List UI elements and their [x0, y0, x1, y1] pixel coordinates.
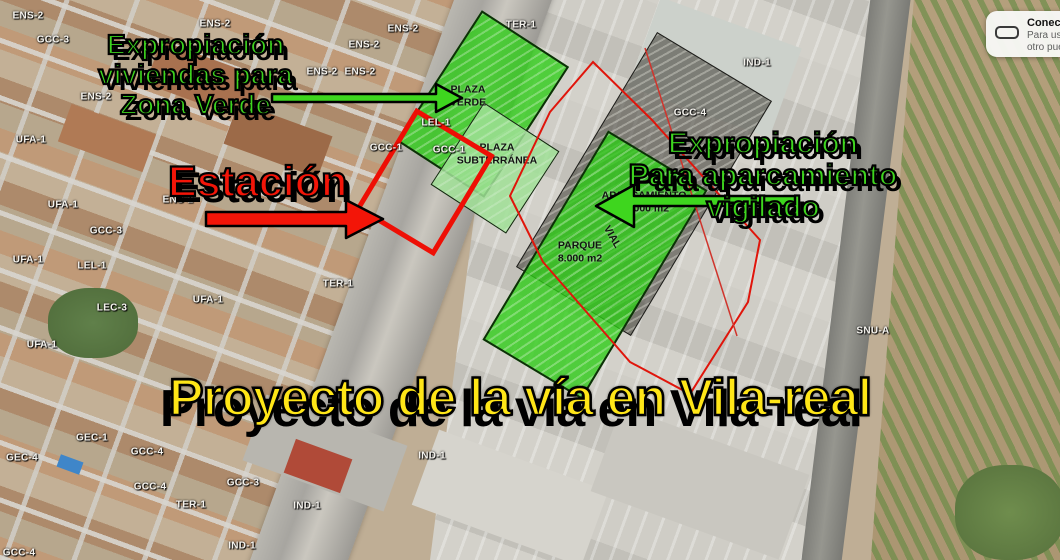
zone-code-label: LEL-1 — [421, 118, 450, 129]
zona-verde-annotation: Expropiación viviendas para Zona Verde — [58, 30, 333, 120]
zone-code-label: IND-1 — [418, 451, 446, 462]
notification-title: Conecta — [1027, 17, 1060, 30]
zone-code-label: IND-1 — [293, 501, 321, 512]
zone-code-label: LEC-3 — [97, 303, 127, 314]
zone-code-label: TER-1 — [506, 20, 536, 31]
zone-code-label: UFA-1 — [16, 135, 46, 146]
notification-toast[interactable]: Conecta Para usar otro puer — [986, 11, 1060, 57]
zone-code-label: UFA-1 — [193, 295, 223, 306]
tree-cluster — [48, 288, 138, 358]
zone-code-label: GCC-1 — [370, 143, 403, 154]
plaza-verde-label: PLAZA VERDE — [450, 84, 486, 109]
zone-code-label: SNU-A — [856, 326, 889, 337]
zone-code-label: ENS-2 — [200, 19, 231, 30]
zone-code-label: UFA-1 — [27, 340, 57, 351]
zone-code-label: GCC-4 — [3, 548, 36, 559]
zone-code-label: GCC-4 — [674, 108, 707, 119]
notification-body-line1: Para usar — [1027, 30, 1060, 42]
notification-body-line2: otro puer — [1027, 42, 1060, 54]
zone-code-label: GCC-3 — [227, 478, 260, 489]
parque-label: PARQUE 8.000 m2 — [558, 240, 602, 265]
zone-code-label: GCC-4 — [131, 447, 164, 458]
usb-connector-icon — [995, 26, 1019, 39]
zone-code-label: LEL-1 — [77, 261, 106, 272]
zone-code-label: GEC-1 — [76, 433, 108, 444]
zone-code-label: GCC-3 — [90, 226, 123, 237]
zone-code-label: ENS-2 — [388, 24, 419, 35]
zone-code-label: ENS-2 — [345, 67, 376, 78]
zone-code-label: GCC-1 — [433, 145, 466, 156]
estacion-annotation: Estación — [168, 160, 347, 204]
page-title: Proyecto de la vía en Vila-real — [60, 368, 980, 428]
screenshot-root: PLAZA VERDE PLAZA SUBTERRÁNEA PARQUE 8.0… — [0, 0, 1060, 560]
zone-code-label: IND-1 — [743, 58, 771, 69]
zone-code-label: IND-1 — [228, 541, 256, 552]
zone-code-label: TER-1 — [176, 500, 206, 511]
aparcamiento-annotation: Expropiación Para aparcamiento vigilado — [608, 128, 918, 224]
zone-code-label: ENS-2 — [13, 11, 44, 22]
tree-cluster — [955, 465, 1060, 560]
zone-code-label: UFA-1 — [13, 255, 43, 266]
zone-code-label: TER-1 — [323, 279, 353, 290]
zone-code-label: GCC-4 — [134, 482, 167, 493]
zone-code-label: ENS-2 — [349, 40, 380, 51]
zone-code-label: UFA-1 — [48, 200, 78, 211]
zone-code-label: GEC-4 — [6, 453, 38, 464]
